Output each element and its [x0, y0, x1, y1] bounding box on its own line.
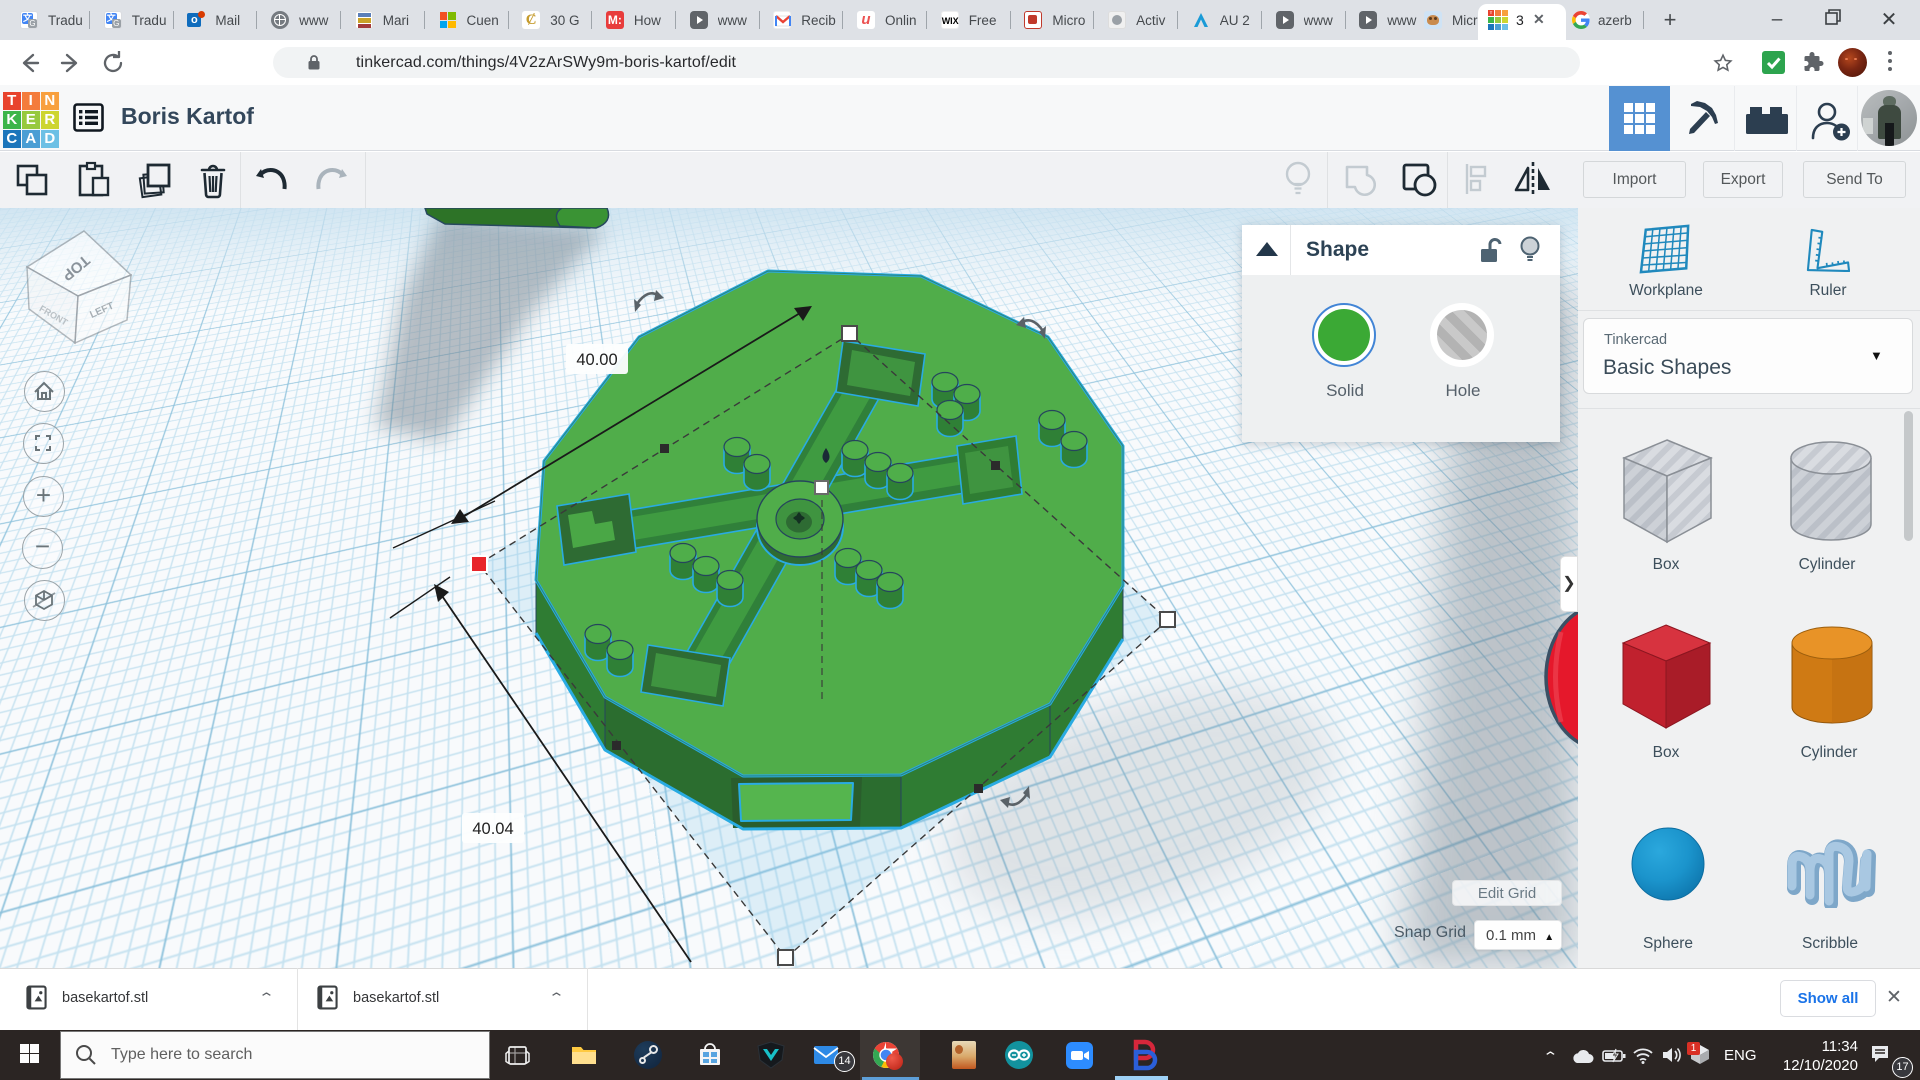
svg-text:40.04: 40.04 [472, 820, 513, 838]
svg-text:40.00: 40.00 [576, 351, 617, 369]
